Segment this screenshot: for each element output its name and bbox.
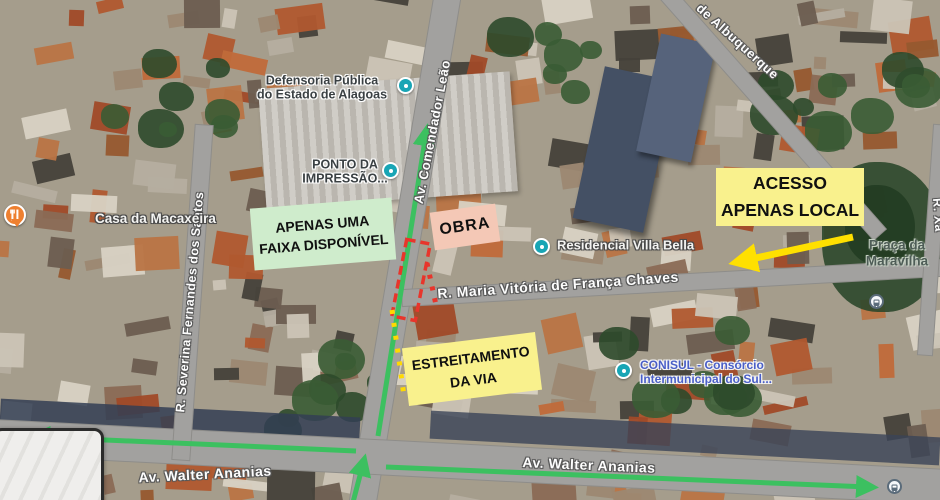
note-estreitamento: ESTREITAMENTO DA VIA [402,332,542,406]
note-obra: OBRA [430,204,501,251]
satellite-map[interactable]: Av. Comendador Leão R. Severina Fernande… [0,0,940,500]
note-apenas-uma-faixa: APENAS UMA FAIXA DISPONÍVEL [250,198,396,271]
note-acesso-apenas-local: ACESSO APENAS LOCAL [716,168,864,226]
inset-map[interactable] [0,428,104,500]
